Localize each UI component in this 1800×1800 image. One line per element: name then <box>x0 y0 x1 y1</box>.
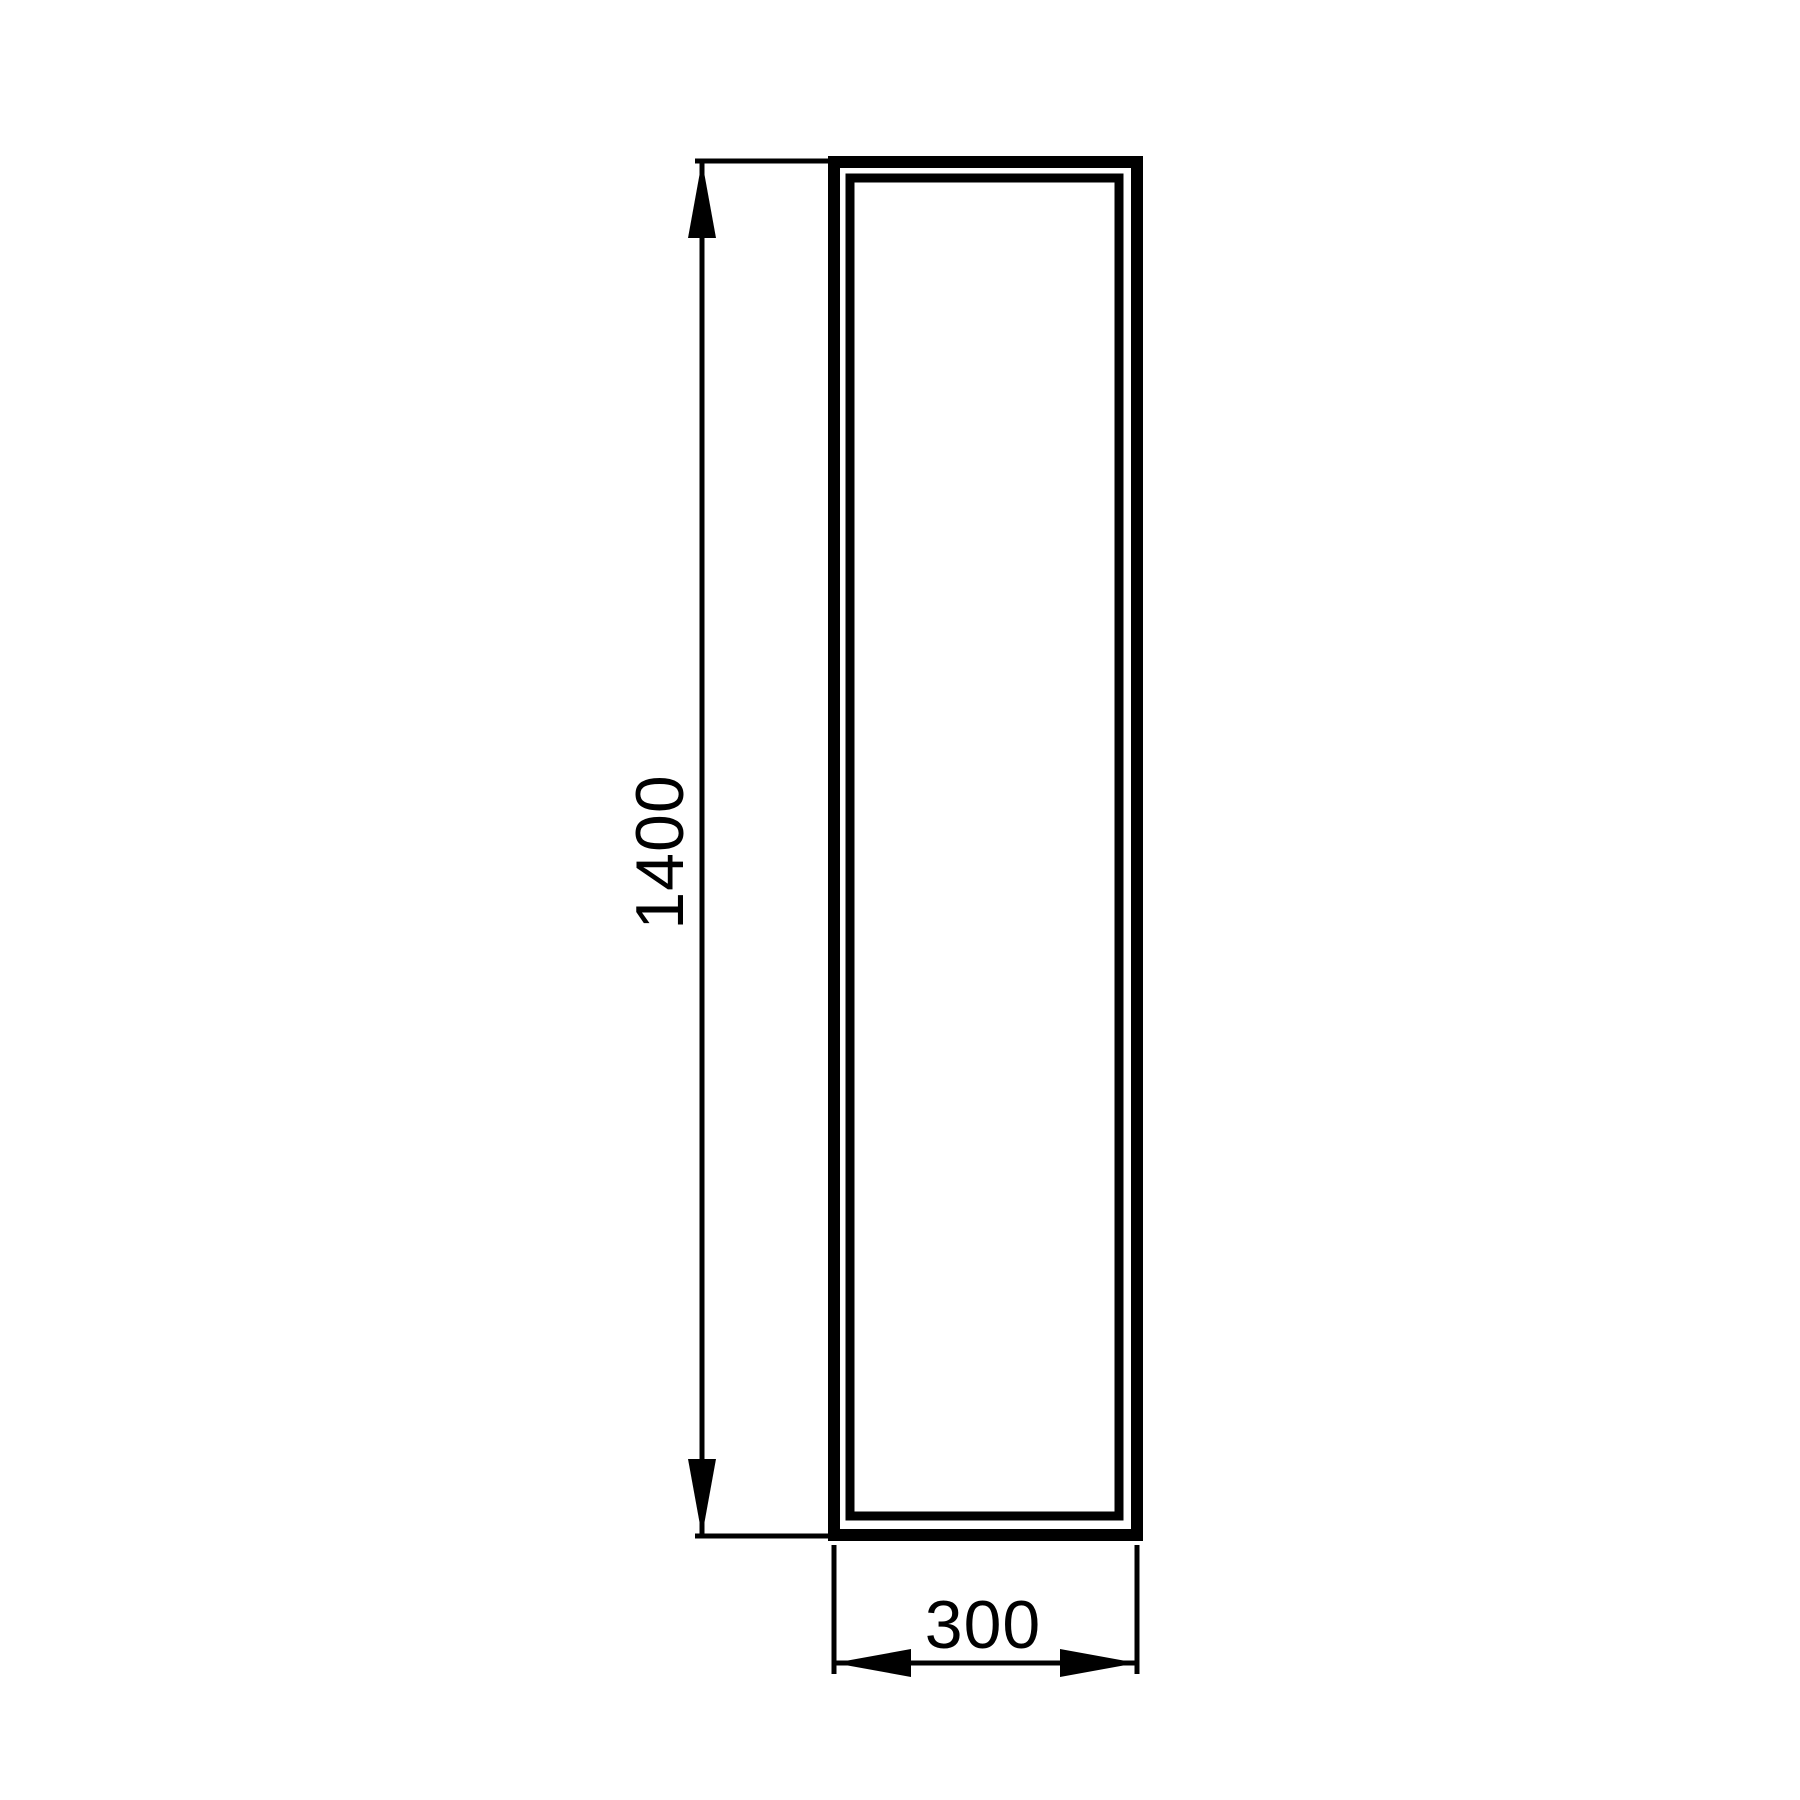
height-dimension-label: 1400 <box>625 652 695 1052</box>
frame-outer-rect <box>834 162 1137 1535</box>
technical-drawing <box>0 0 1800 1800</box>
arrow-down-icon <box>688 1459 716 1536</box>
frame-inner-rect <box>850 178 1119 1516</box>
arrow-up-icon <box>688 161 716 238</box>
drawing-canvas: 1400 300 <box>0 0 1800 1800</box>
width-dimension-label: 300 <box>783 1590 1183 1660</box>
